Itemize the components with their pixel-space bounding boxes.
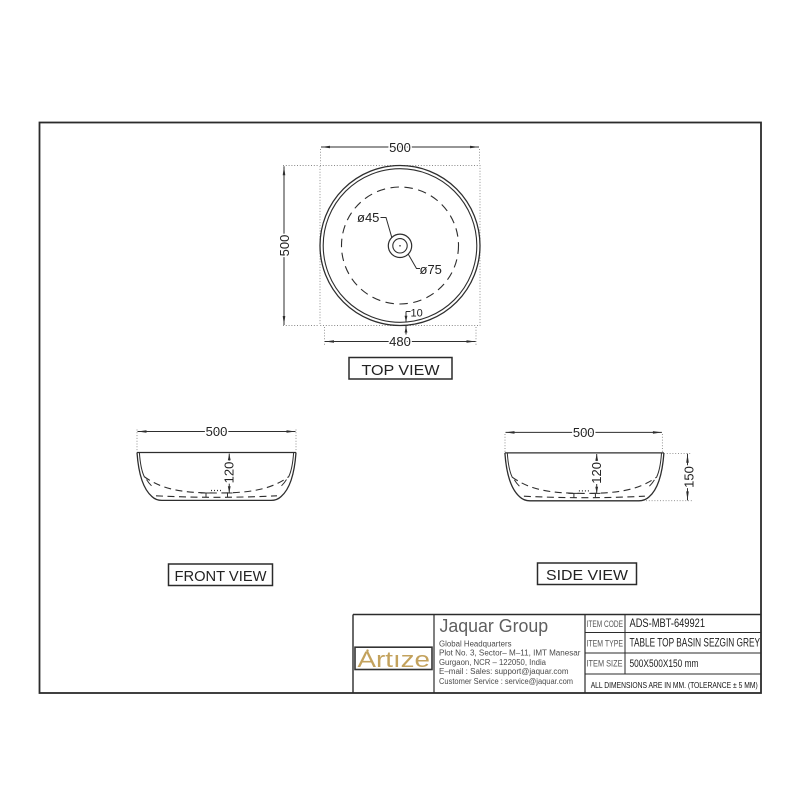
svg-text:TABLE TOP BASIN SEZGIN GREY: TABLE TOP BASIN SEZGIN GREY bbox=[630, 638, 761, 650]
svg-text:ITEM CODE: ITEM CODE bbox=[587, 619, 624, 630]
svg-text:ITEM TYPE: ITEM TYPE bbox=[587, 638, 624, 649]
svg-text:TOP VIEW: TOP VIEW bbox=[362, 362, 441, 379]
svg-text:Customer Service : service@jaq: Customer Service : service@jaquar.com bbox=[439, 677, 573, 686]
svg-text:150: 150 bbox=[682, 466, 697, 488]
svg-text:500: 500 bbox=[389, 140, 411, 155]
svg-text:ADS-MBT-649921: ADS-MBT-649921 bbox=[630, 618, 706, 630]
svg-text:ITEM SIZE: ITEM SIZE bbox=[587, 659, 623, 670]
svg-text:500: 500 bbox=[573, 425, 595, 440]
svg-text:Plot No. 3, Sector– M–11, IMT: Plot No. 3, Sector– M–11, IMT Manesar bbox=[439, 649, 581, 658]
svg-text:SIDE VIEW: SIDE VIEW bbox=[546, 567, 629, 584]
svg-text:Gurgaon, NCR – 122050, India: Gurgaon, NCR – 122050, India bbox=[439, 658, 547, 667]
svg-text:120: 120 bbox=[222, 462, 237, 484]
svg-text:Jaquar Group: Jaquar Group bbox=[440, 616, 549, 636]
svg-text:500: 500 bbox=[277, 235, 292, 257]
svg-text:120: 120 bbox=[589, 462, 604, 484]
svg-text:500X500X150 mm: 500X500X150 mm bbox=[630, 658, 699, 670]
svg-text:ø45: ø45 bbox=[357, 210, 379, 225]
svg-text:ALL DIMENSIONS ARE IN MM. (TOL: ALL DIMENSIONS ARE IN MM. (TOLERANCE ± 5… bbox=[591, 680, 758, 690]
svg-text:500: 500 bbox=[206, 424, 228, 439]
svg-text:480: 480 bbox=[389, 334, 411, 349]
svg-text:E–mail : Sales: support@jaquar: E–mail : Sales: support@jaquar.com bbox=[439, 667, 569, 676]
svg-text:FRONT VIEW: FRONT VIEW bbox=[175, 568, 268, 585]
svg-text:Global Headquarters: Global Headquarters bbox=[439, 640, 512, 649]
svg-text:ø75: ø75 bbox=[420, 262, 442, 277]
svg-text:10: 10 bbox=[411, 307, 423, 319]
